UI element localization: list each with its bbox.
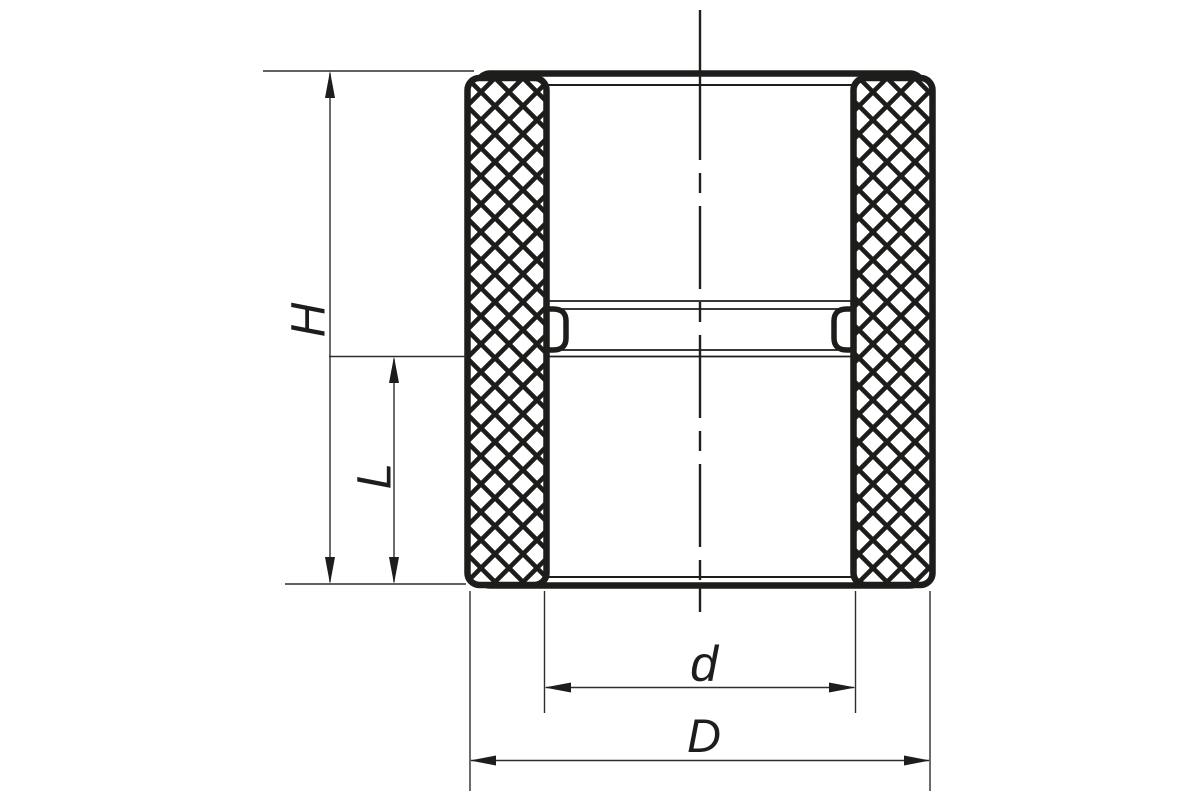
dimension-h: H <box>263 71 474 584</box>
dimension-d-arrow-left <box>545 683 572 693</box>
technical-drawing-canvas: H L d D <box>0 0 1200 800</box>
center-groove-right-lug <box>834 309 850 350</box>
knurl-band-left <box>468 78 547 585</box>
dimension-outer-d-label: D <box>687 709 721 762</box>
dimension-l: L <box>329 357 466 585</box>
dimension-h-arrow-top <box>325 71 335 98</box>
center-groove-left-lug <box>550 309 566 350</box>
dimension-l-arrow-top <box>389 357 399 384</box>
dimension-h-label: H <box>283 302 336 337</box>
dimension-outer-d-arrow-right <box>904 756 930 766</box>
dimension-h-arrow-bottom <box>325 557 335 584</box>
dimension-l-label: L <box>349 463 402 490</box>
dimension-d-label: d <box>690 636 720 692</box>
knurl-band-right <box>854 78 933 585</box>
dimension-d-arrow-right <box>829 683 856 693</box>
knurl-band-right-texture <box>854 78 933 585</box>
dimension-l-arrow-bottom <box>389 557 399 584</box>
dimension-outer-d-arrow-left <box>470 756 496 766</box>
knurl-band-left-texture <box>468 78 547 585</box>
drawing-page: H L d D <box>0 0 1200 800</box>
